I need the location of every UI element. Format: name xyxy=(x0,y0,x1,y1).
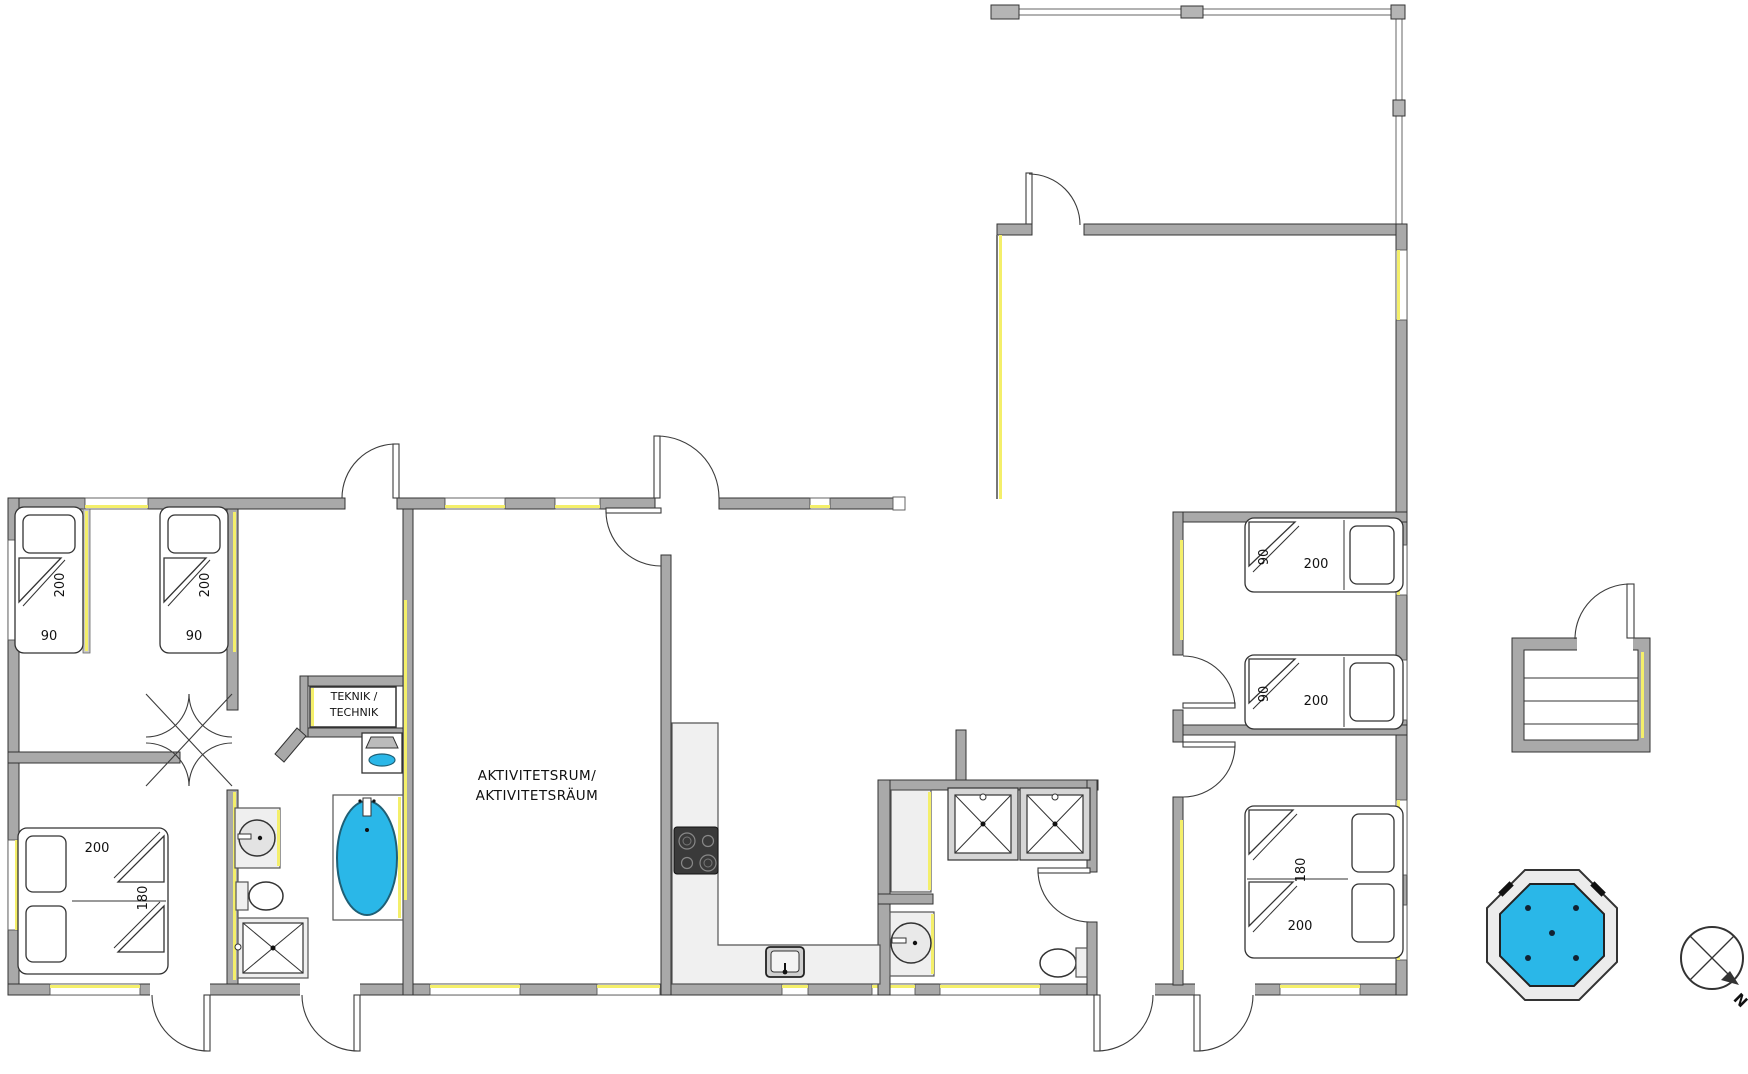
bed-width-label: 90 xyxy=(1257,686,1272,703)
door-leaf xyxy=(393,444,399,498)
floor-plan: 200 90 200 90 200 180 TEKNIK / TECHNIK xyxy=(0,0,1748,1074)
window xyxy=(928,792,931,890)
door-swing-arc xyxy=(1575,584,1630,639)
entrance-stairs xyxy=(1512,584,1650,752)
bedroom-left-double: 200 180 xyxy=(18,828,168,974)
stairs-inner xyxy=(1524,650,1638,740)
window xyxy=(233,512,236,652)
door-leaf xyxy=(606,508,661,513)
bathroom-1 xyxy=(235,733,403,978)
toilet-tank xyxy=(1076,948,1087,977)
window xyxy=(85,505,148,508)
window xyxy=(50,985,140,988)
door-swing-arc xyxy=(1038,870,1090,922)
kitchen xyxy=(672,723,880,984)
bed-length-label: 200 xyxy=(53,573,68,598)
fence-post-icon xyxy=(1391,5,1405,19)
door-swing-arc xyxy=(302,995,358,1051)
hot-tub-jet xyxy=(1549,930,1555,936)
utility-sink-faucet-icon xyxy=(366,737,398,748)
bedroom-right-2: 90 200 xyxy=(1245,655,1403,729)
window xyxy=(597,985,660,988)
bed-pillow xyxy=(1352,814,1394,872)
compass-north-label: N xyxy=(1730,990,1748,1012)
wall xyxy=(830,498,900,509)
bedroom-left-2: 200 90 xyxy=(160,507,228,653)
kitchen-sink-faucet xyxy=(783,970,788,975)
bed-pillow xyxy=(1350,526,1394,584)
bed-length-label: 200 xyxy=(1304,694,1329,709)
door-swing-arc xyxy=(342,444,396,498)
window xyxy=(940,985,1040,988)
door-opening xyxy=(1095,983,1155,996)
bed-length-label: 200 xyxy=(198,573,213,598)
door-opening xyxy=(1195,983,1255,996)
wall xyxy=(1087,922,1097,995)
bedroom-right-1: 90 200 xyxy=(1245,518,1403,592)
bed-width-label: 90 xyxy=(41,629,58,644)
window xyxy=(85,511,88,651)
door-leaf xyxy=(1627,584,1634,638)
hot-tub-jet xyxy=(1525,955,1531,961)
door-swing-arc xyxy=(1183,656,1235,708)
washbasin-faucet-icon xyxy=(238,834,251,839)
washbasin-drain xyxy=(913,941,917,945)
wall-connector xyxy=(893,497,905,510)
window xyxy=(404,600,407,900)
window xyxy=(445,505,505,508)
bathtub-icon xyxy=(337,801,397,915)
shower-head-icon xyxy=(1052,794,1058,800)
fence-post-icon xyxy=(991,5,1019,19)
wall xyxy=(505,498,555,509)
bed-width-label: 180 xyxy=(136,886,151,911)
fence-post-icon xyxy=(1393,100,1405,116)
bed-pillow xyxy=(26,906,66,962)
window xyxy=(999,235,1002,499)
door-leaf xyxy=(204,995,210,1051)
bathtub-drain xyxy=(365,828,369,832)
wall xyxy=(300,676,308,737)
bed-width-label: 180 xyxy=(1294,858,1309,883)
door-swing-arc xyxy=(1183,745,1235,797)
wall xyxy=(600,498,655,509)
door-opening xyxy=(300,983,360,996)
toilet-icon xyxy=(249,882,283,910)
floor-plan-svg: 200 90 200 90 200 180 TEKNIK / TECHNIK xyxy=(0,0,1748,1074)
bed-pillow xyxy=(26,836,66,892)
activity-room-label-line2: AKTIVITETSRÄUM xyxy=(476,786,599,804)
window xyxy=(810,505,830,508)
wall xyxy=(397,498,445,509)
wall xyxy=(1084,224,1407,235)
window xyxy=(398,797,401,918)
window xyxy=(1397,250,1400,320)
door-opening xyxy=(1577,636,1633,651)
window xyxy=(1280,985,1360,988)
wall xyxy=(661,555,671,995)
door-leaf xyxy=(1183,742,1235,747)
bed-length-label: 200 xyxy=(85,841,110,856)
hot-tub-jet xyxy=(1525,905,1531,911)
bed-length-label: 200 xyxy=(1288,919,1313,934)
wall xyxy=(300,676,404,686)
door-swing-arc xyxy=(606,511,661,566)
shower-head-icon xyxy=(980,794,986,800)
door-leaf xyxy=(1026,173,1032,224)
door-swing-arc xyxy=(1097,995,1153,1051)
door-leaf xyxy=(1094,995,1100,1051)
wall xyxy=(997,224,1032,235)
hot-tub xyxy=(1487,870,1617,1000)
bathtub-faucet-icon xyxy=(363,798,371,816)
window xyxy=(782,985,808,988)
door-swing-arc xyxy=(1197,995,1253,1051)
washbasin-faucet-icon xyxy=(892,938,906,943)
activity-room-label-line1: AKTIVITETSRUM/ xyxy=(478,768,597,784)
window xyxy=(1180,820,1183,970)
wardrobe xyxy=(891,790,931,892)
utility-sink-basin xyxy=(369,754,395,766)
bed-pillow xyxy=(1350,663,1394,721)
bed-pillow xyxy=(1352,884,1394,942)
wall xyxy=(1173,710,1183,742)
bed-width-label: 90 xyxy=(186,629,203,644)
door-leaf xyxy=(654,436,660,498)
door-swing-arc xyxy=(152,995,208,1051)
fence-post-icon xyxy=(1181,6,1203,18)
teknik-label-line2: TECHNIK xyxy=(329,706,379,719)
bed-pillow xyxy=(168,515,220,553)
terrace-fence xyxy=(991,5,1405,225)
toilet-icon xyxy=(1040,949,1076,977)
bedroom-left-1: 200 90 xyxy=(15,507,83,653)
compass: N xyxy=(1681,927,1748,1011)
bathroom-2 xyxy=(890,788,1090,977)
wall xyxy=(956,730,966,784)
shower-head-icon xyxy=(235,944,241,950)
bedroom-right-double: 180 200 xyxy=(1245,806,1403,958)
bed-width-label: 90 xyxy=(1257,549,1272,566)
wall xyxy=(719,498,810,509)
washbasin-drain xyxy=(258,836,262,840)
bed-pillow xyxy=(23,515,75,553)
window xyxy=(430,985,520,988)
window xyxy=(277,810,280,866)
window xyxy=(555,505,600,508)
activity-room: AKTIVITETSRUM/ AKTIVITETSRÄUM xyxy=(476,768,599,804)
hot-tub-jet xyxy=(1573,955,1579,961)
door-swing-arc xyxy=(1029,174,1080,225)
stove-icon xyxy=(674,827,718,874)
door-swing-arc xyxy=(657,436,719,498)
window-wall xyxy=(996,235,998,499)
toilet-tank xyxy=(236,882,248,910)
door-leaf xyxy=(354,995,360,1051)
door-opening xyxy=(150,983,210,996)
shower-drain xyxy=(271,946,276,951)
window xyxy=(1180,540,1183,640)
wall xyxy=(878,894,933,904)
window xyxy=(1641,652,1644,738)
window xyxy=(311,688,314,726)
wall xyxy=(8,752,180,763)
teknik-label-line1: TEKNIK / xyxy=(330,690,378,703)
door-leaf xyxy=(1038,868,1090,873)
hot-tub-jet xyxy=(1573,905,1579,911)
door-leaf xyxy=(1194,995,1200,1051)
fence-right-rail xyxy=(1396,9,1402,225)
door-leaf xyxy=(1183,703,1235,708)
diagonal-wall xyxy=(275,728,306,762)
teknik-room: TEKNIK / TECHNIK xyxy=(310,687,396,727)
bed-length-label: 200 xyxy=(1304,557,1329,572)
